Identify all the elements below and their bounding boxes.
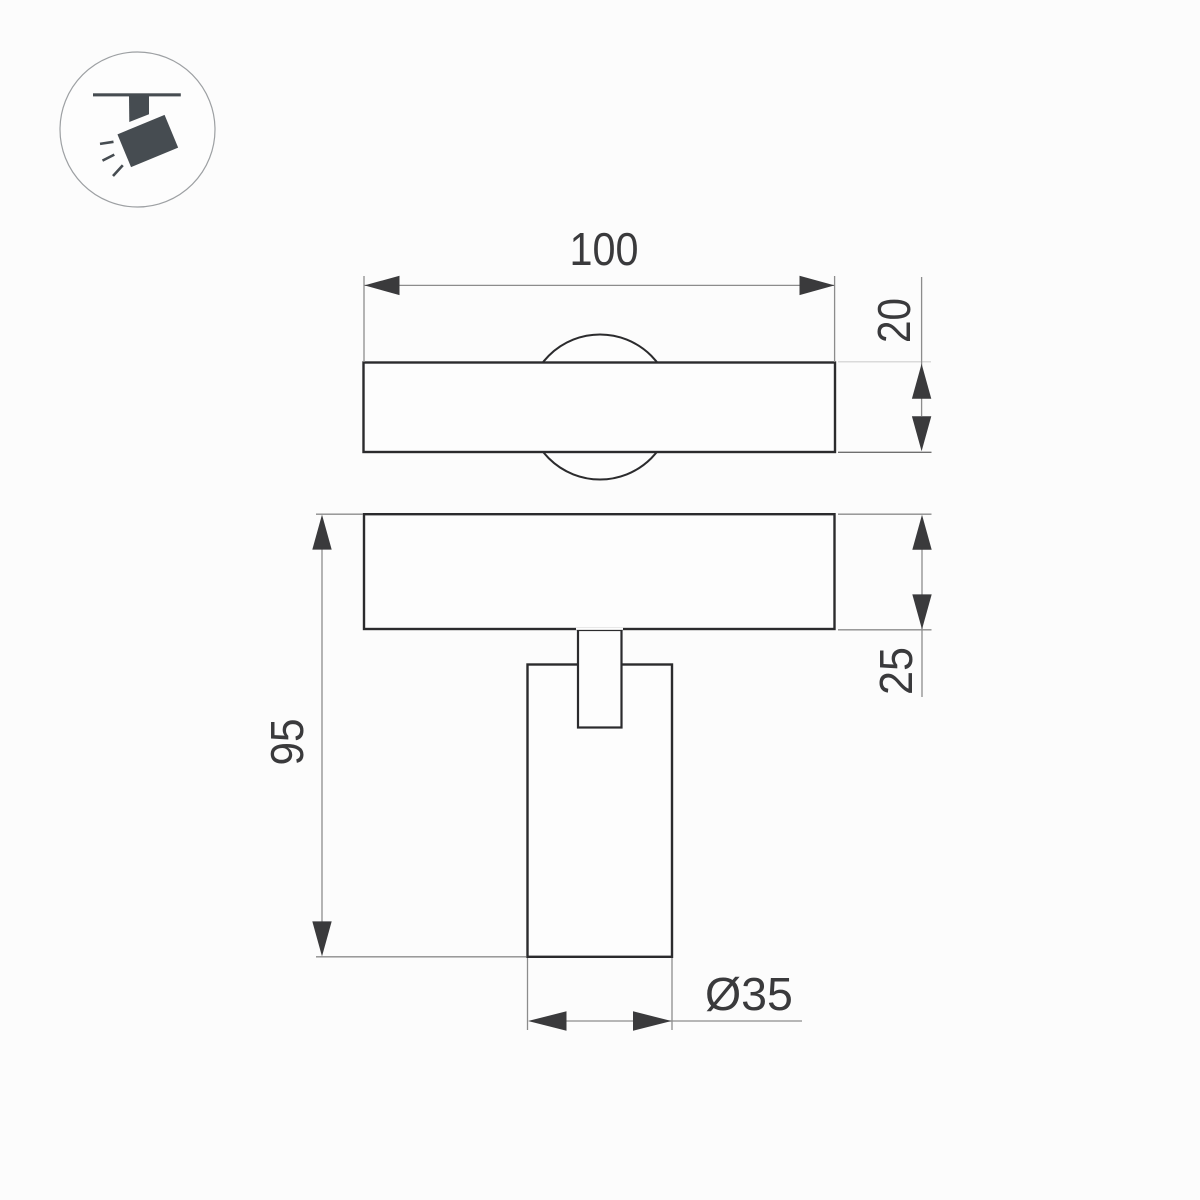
svg-text:95: 95 — [261, 719, 313, 766]
svg-text:100: 100 — [570, 223, 639, 275]
svg-text:Ø35: Ø35 — [705, 968, 793, 1020]
svg-text:25: 25 — [870, 647, 922, 695]
svg-text:20: 20 — [868, 298, 920, 343]
